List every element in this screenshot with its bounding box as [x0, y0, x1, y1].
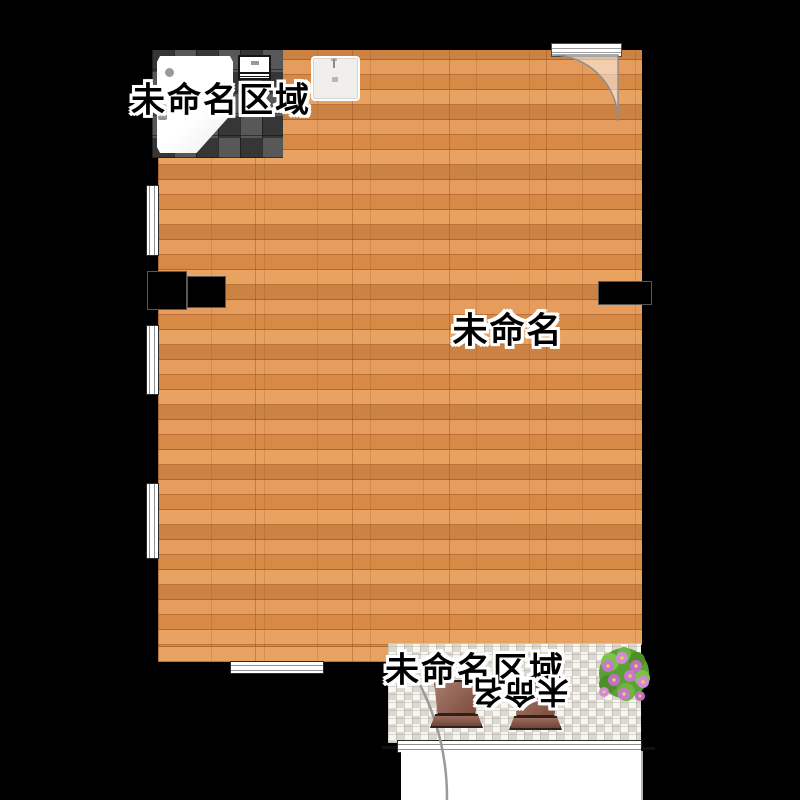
- cabinet-block-left-b[interactable]: [187, 276, 226, 308]
- drain-icon: [332, 77, 338, 82]
- room-label-balcony-flipped[interactable]: 未命名: [470, 672, 569, 717]
- cabinet-block-left-a[interactable]: [147, 271, 187, 310]
- main-room-floor-lower-strip[interactable]: [158, 645, 389, 662]
- cabinet-block-right[interactable]: [598, 281, 652, 305]
- kitchen-sink[interactable]: [311, 56, 360, 101]
- room-label-top-area[interactable]: 未命名区域: [131, 73, 311, 122]
- window-left-1[interactable]: [146, 185, 159, 256]
- oven-control-icon: [251, 61, 259, 65]
- window-bottom[interactable]: [230, 661, 324, 674]
- entry-door-top-right[interactable]: [551, 43, 622, 57]
- window-left-2[interactable]: [146, 325, 159, 395]
- window-left-3[interactable]: [146, 483, 159, 559]
- faucet-icon: [333, 59, 335, 68]
- balcony-door-swing-area: [401, 751, 643, 800]
- window-end-tick: [382, 746, 397, 749]
- room-label-main[interactable]: 未命名: [452, 303, 563, 354]
- floorplan-canvas: 未命名区域 未命名 未命名区域 未命名: [0, 0, 800, 800]
- window-end-tick: [641, 747, 655, 750]
